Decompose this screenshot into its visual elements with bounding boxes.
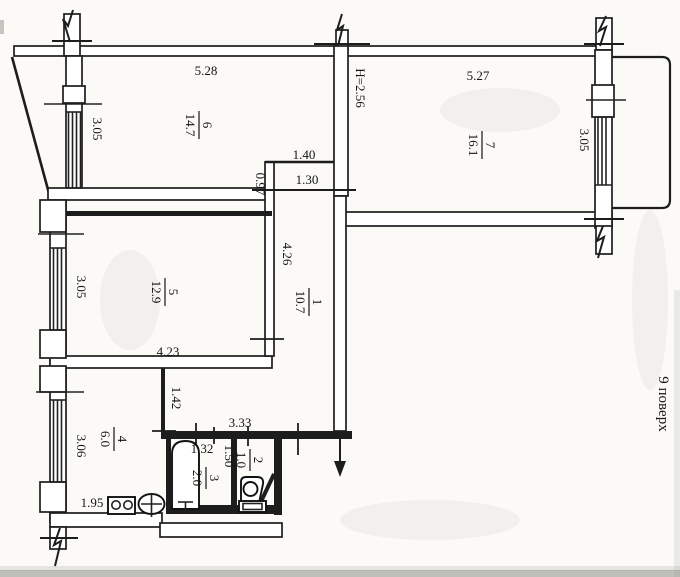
room-area: 6.0: [98, 431, 113, 447]
wall-diagonal-top-left: [12, 57, 50, 197]
room-number: 5: [166, 289, 181, 296]
wall-stub-top-left: [64, 14, 80, 56]
dim-corridor-length: 4.26: [280, 243, 295, 266]
room-number: 1: [310, 299, 325, 306]
room-label-7: 7 16.1: [466, 131, 498, 159]
room-number: 3: [207, 475, 222, 482]
wall-kitchen-right: [161, 368, 165, 431]
pilaster: [40, 366, 66, 392]
dim-kitchen-partition: 1.42: [169, 387, 184, 410]
wall-bottom-left: [50, 513, 162, 527]
break-bottom-left: [40, 528, 78, 566]
pilaster: [40, 330, 66, 358]
pilaster: [40, 482, 66, 512]
dim-room5-width: 4.23: [157, 344, 180, 359]
scan-edge-bottom: [0, 570, 680, 577]
dim-room6-width: 5.28: [195, 63, 218, 78]
scanned-floor-plan: 5.28 5.27 1.40 1.30 4.23 3.33 1.32 1.95 …: [0, 0, 680, 577]
wall-room5-top: [66, 211, 272, 216]
dim-room7-width: 5.27: [467, 68, 490, 83]
pilaster: [40, 200, 66, 232]
window-sill-room6: [63, 86, 85, 103]
wall-bottom-middle: [160, 523, 282, 537]
room-number: 2: [251, 457, 266, 464]
room-area: 14.7: [183, 114, 198, 137]
room-label-3: 3 2.0: [190, 467, 222, 489]
dim-bathtub-length: 1.32: [191, 441, 214, 456]
dim-closet-depth: 0.97: [253, 173, 268, 196]
room-label-2: 2 1.0: [234, 449, 266, 471]
wall-bathroom-left: [166, 439, 171, 507]
window-sill-room7: [592, 85, 614, 117]
wall-corridor-right: [334, 196, 346, 431]
room-area: 1.0: [234, 452, 249, 468]
room-label-1: 1 10.7: [293, 288, 325, 316]
toilet: [239, 477, 266, 512]
room-area: 2.0: [190, 470, 205, 486]
break-corridor-arrow: [334, 439, 346, 477]
scan-edge-right: [674, 290, 680, 577]
wall-top: [14, 46, 612, 56]
dim-kitchen-depth: 3.06: [74, 435, 89, 458]
dim-room5-depth: 3.05: [74, 276, 89, 299]
dim-room6-depth: 3.05: [90, 118, 105, 141]
balcony-outline: [612, 57, 670, 208]
dim-room7-depth: 3.05: [577, 129, 592, 152]
room-area: 16.1: [466, 134, 481, 157]
wall-room6-bottom: [48, 188, 272, 200]
wall-divider-6-7: [334, 46, 348, 196]
floor-note: 9 поверх: [655, 376, 671, 432]
arrow-head: [334, 461, 346, 477]
dim-closet-width: 1.40: [293, 147, 316, 162]
dim-ceiling-height: H=2.56: [353, 68, 368, 108]
stove: [108, 497, 135, 514]
floor-plan-drawing: 5.28 5.27 1.40 1.30 4.23 3.33 1.32 1.95 …: [0, 0, 680, 577]
room-number: 7: [483, 142, 498, 149]
room-label-4: 4 6.0: [98, 427, 130, 451]
wall-room7-bottom: [336, 212, 612, 226]
room-number: 6: [200, 122, 215, 129]
dim-bath-block-width: 3.33: [229, 415, 252, 430]
wall-wc-right: [274, 439, 282, 515]
dim-kitchen-width: 1.95: [81, 495, 104, 510]
room-number: 4: [115, 436, 130, 443]
room-area: 12.9: [149, 281, 164, 304]
room-label-5: 5 12.9: [149, 278, 181, 306]
wall-bath-top-entrance: [161, 431, 352, 439]
room-area: 10.7: [293, 291, 308, 314]
scan-edge-mark: [0, 20, 4, 34]
dim-closet-inner-width: 1.30: [296, 172, 319, 187]
room-label-6: 6 14.7: [183, 111, 215, 139]
